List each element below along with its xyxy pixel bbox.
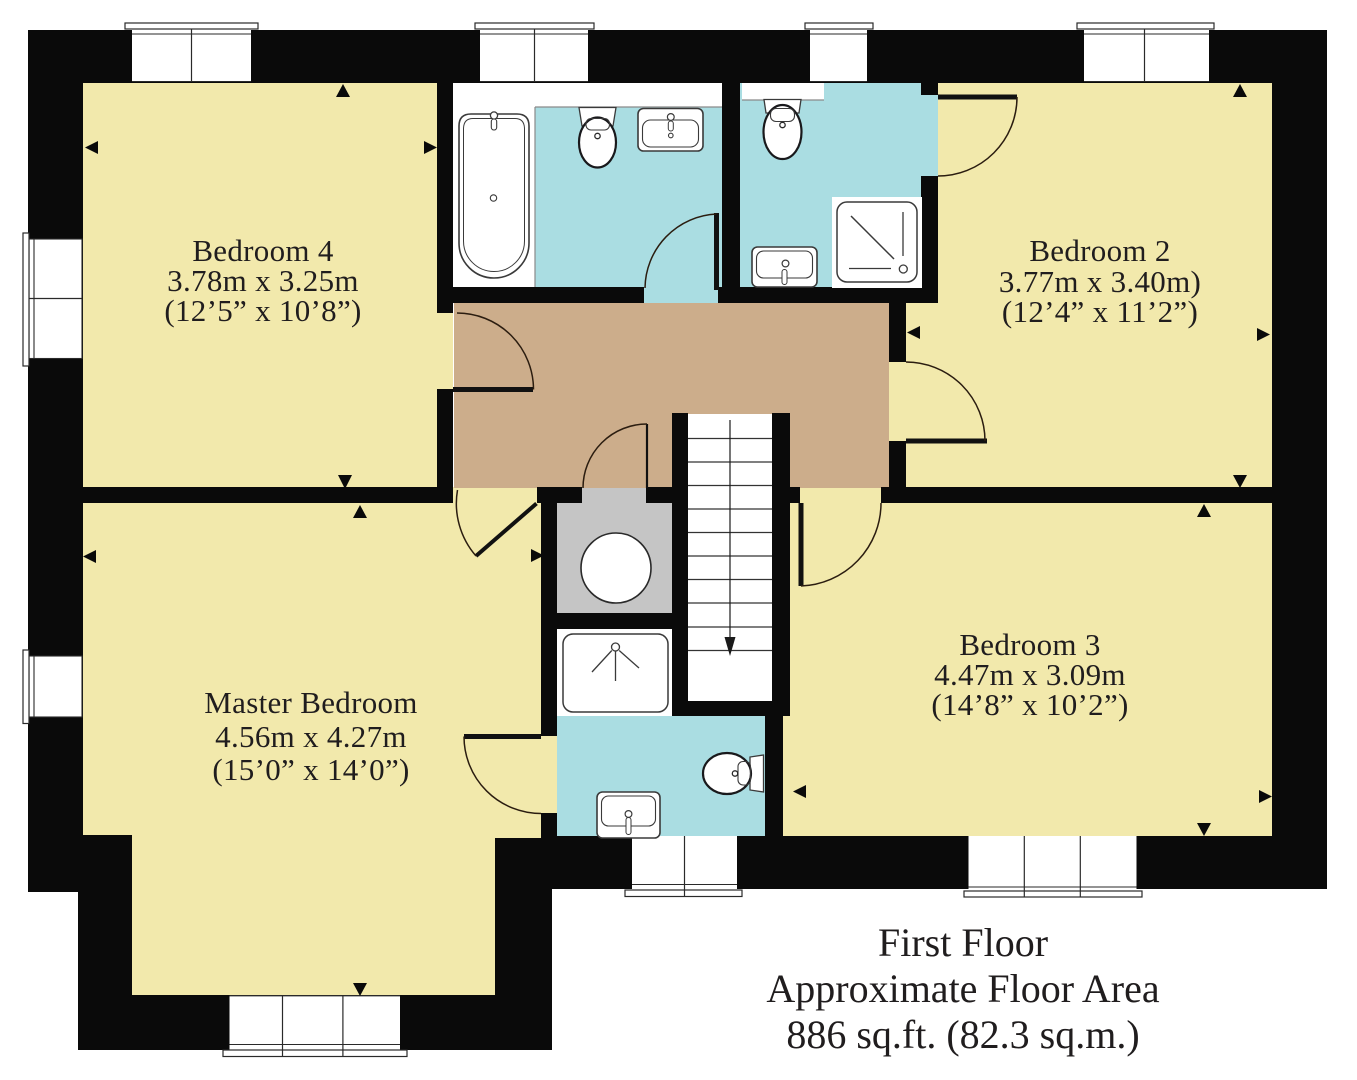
svg-text:(12’4” x 11’2”): (12’4” x 11’2”) bbox=[1002, 294, 1198, 329]
svg-text:(15’0” x 14’0”): (15’0” x 14’0”) bbox=[212, 752, 409, 787]
svg-text:Approximate Floor Area: Approximate Floor Area bbox=[766, 966, 1159, 1011]
svg-text:(12’5” x 10’8”): (12’5” x 10’8”) bbox=[164, 293, 361, 328]
svg-text:886 sq.ft. (82.3 sq.m.): 886 sq.ft. (82.3 sq.m.) bbox=[786, 1012, 1139, 1057]
svg-text:Master Bedroom: Master Bedroom bbox=[204, 685, 417, 720]
svg-text:First Floor: First Floor bbox=[878, 920, 1048, 965]
svg-text:Bedroom 2: Bedroom 2 bbox=[1029, 233, 1170, 268]
svg-text:(14’8” x 10’2”): (14’8” x 10’2”) bbox=[931, 687, 1128, 722]
svg-text:4.56m x 4.27m: 4.56m x 4.27m bbox=[215, 719, 407, 754]
